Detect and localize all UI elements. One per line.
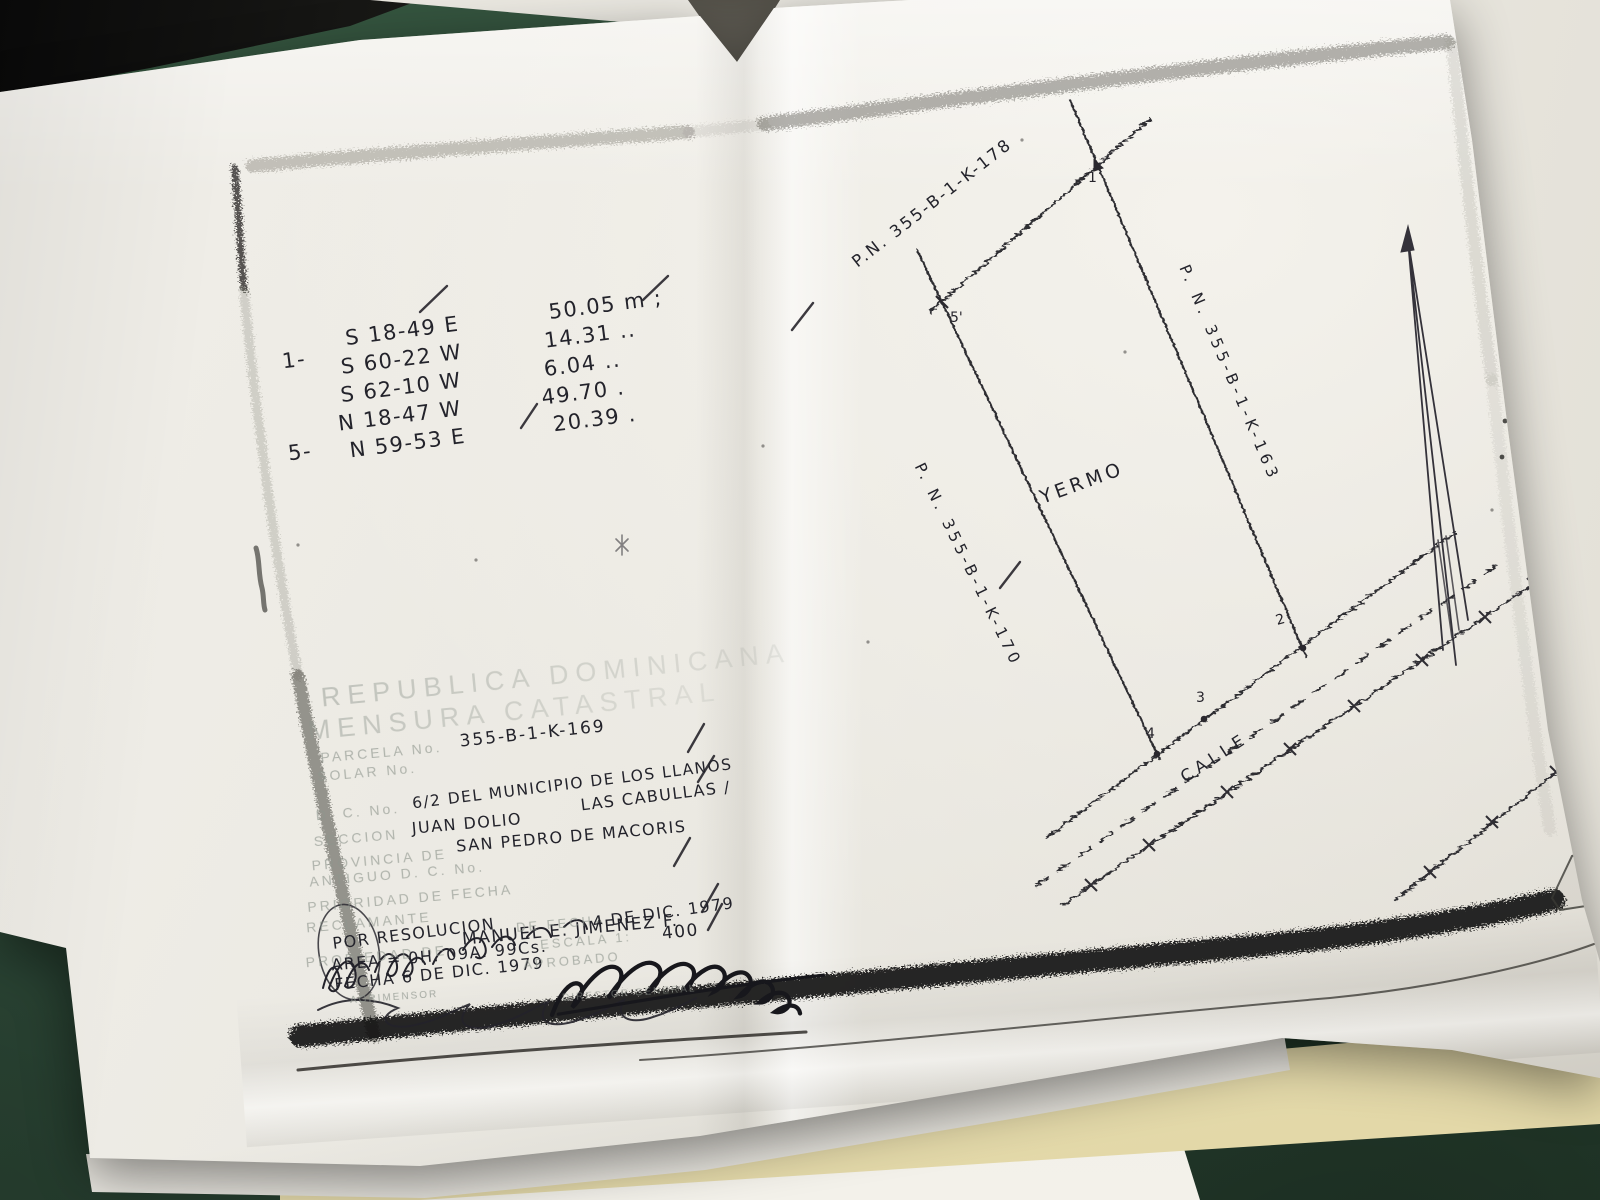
survey-linework: [0, 0, 1600, 1200]
photocopy-frame: [235, 42, 1554, 1036]
parcel-diagram: [917, 100, 1600, 905]
point-label-5: 5': [950, 310, 963, 326]
survey-plan-sheet: 1- 5- S 18-49 E 50.05 m ; S 60-22 W 14.3…: [0, 0, 1600, 1200]
parcel-top-edge: [930, 119, 1150, 312]
photo-of-survey-document: NEVADO: [0, 0, 1600, 1200]
north-arrow: [1401, 226, 1468, 665]
point-label-3: 3: [1196, 690, 1205, 706]
main-sheet-wrapper: 1- 5- S 18-49 E 50.05 m ; S 60-22 W 14.3…: [0, 0, 1600, 1200]
bearing-start-point: 1-: [281, 347, 308, 374]
bearing-end-point: 5-: [287, 439, 314, 466]
point-label-1: 1: [1088, 170, 1097, 186]
escala-value: 400: [661, 920, 700, 944]
point-label-4: 4: [1146, 726, 1155, 742]
road-near-edge: [1046, 532, 1455, 838]
road-centerline: [1036, 562, 1502, 886]
road-far-edge: [1062, 574, 1548, 905]
parcel-left-edge: [917, 250, 1160, 760]
parcel-right-edge: [1070, 100, 1306, 657]
vertex-marks: [936, 160, 1306, 757]
